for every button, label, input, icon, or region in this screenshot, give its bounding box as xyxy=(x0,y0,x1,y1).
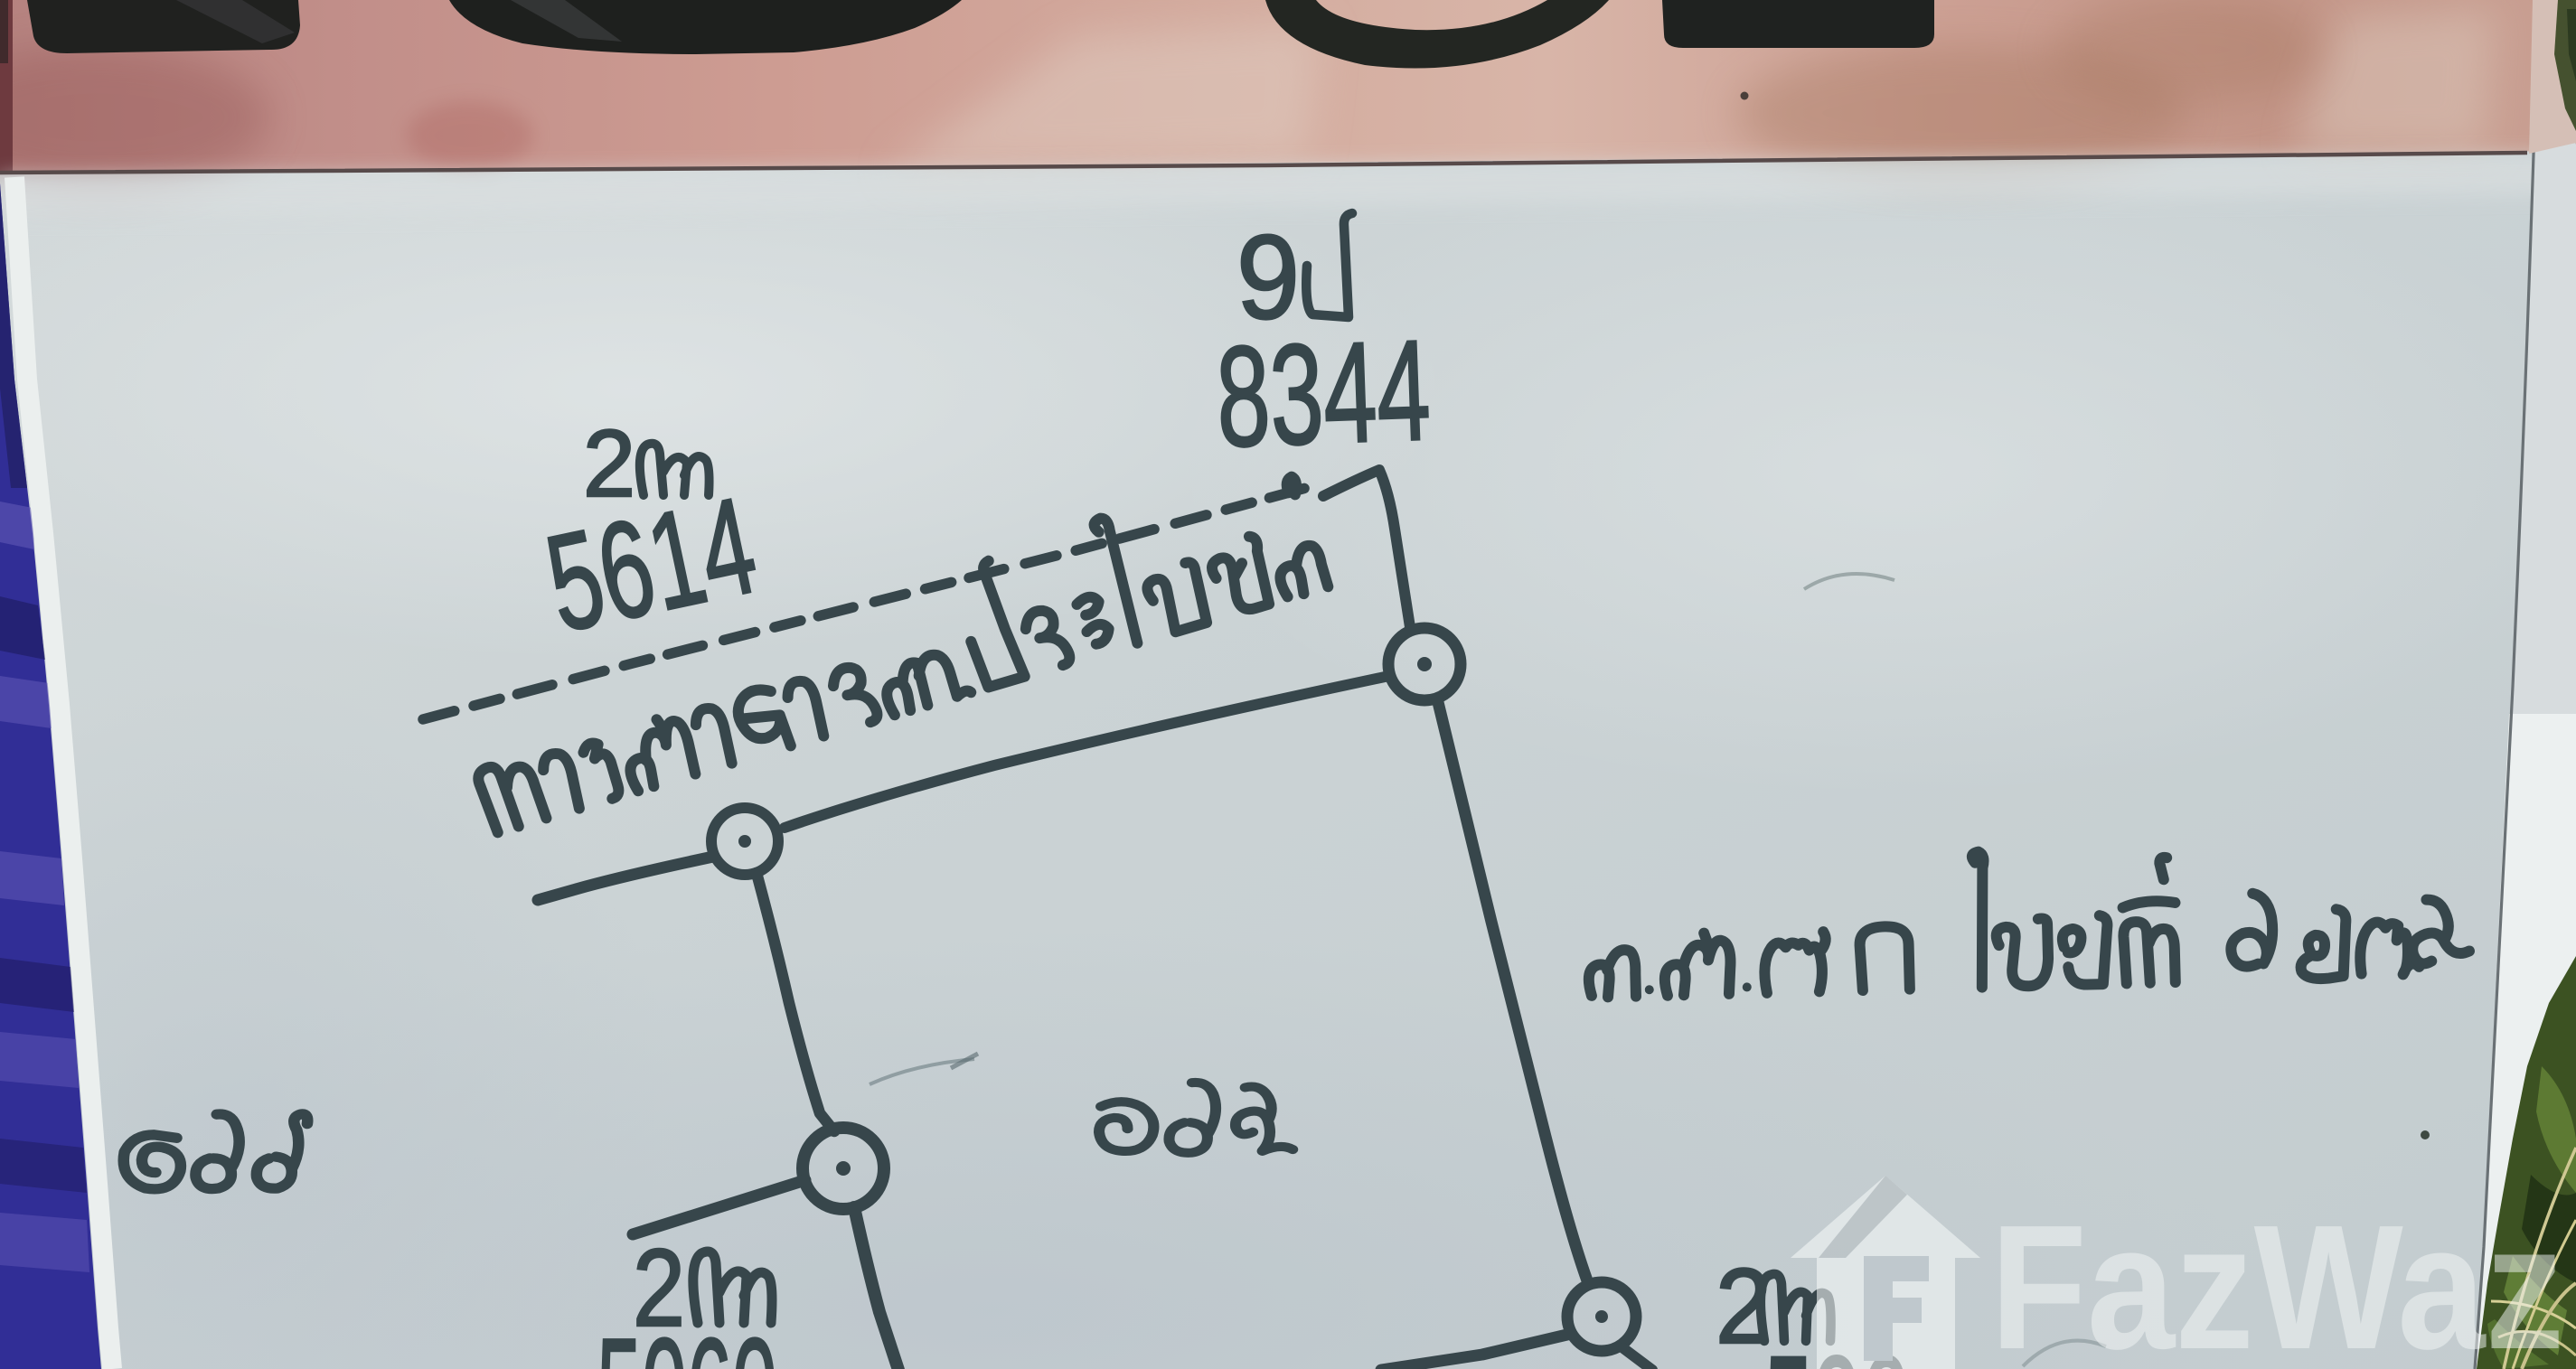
svg-text:FazWaz: FazWaz xyxy=(1990,1188,2564,1369)
svg-text:2: 2 xyxy=(583,411,635,517)
svg-text:5060: 5060 xyxy=(597,1307,777,1369)
svg-text:8344: 8344 xyxy=(1214,311,1433,477)
